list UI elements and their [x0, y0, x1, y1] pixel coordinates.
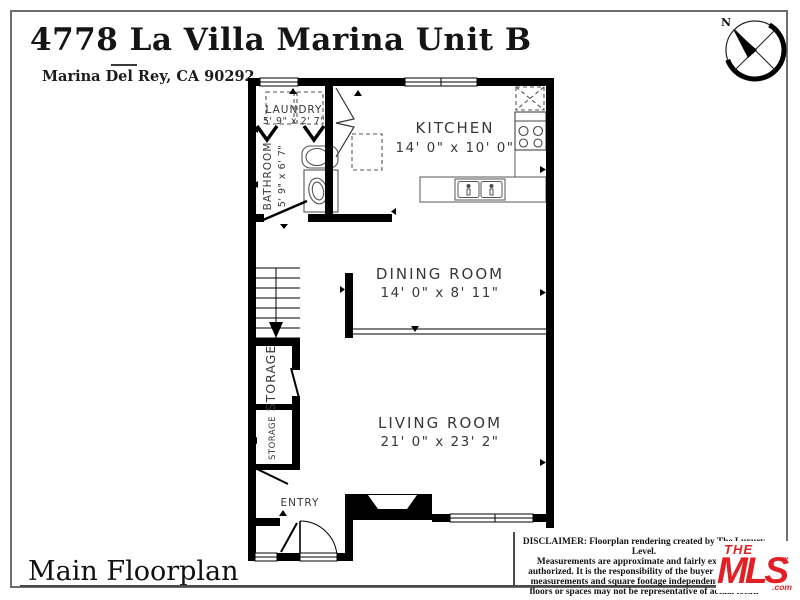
kitchen-appliance-dashed — [352, 134, 382, 170]
north-label: N — [721, 16, 731, 29]
mls-logo: THE MLS ™ .com — [716, 541, 792, 593]
plan-title: Main Floorplan — [28, 556, 239, 587]
living-window-2 — [495, 514, 533, 522]
entry-label: ENTRY — [281, 497, 320, 509]
front-door-swing — [300, 521, 337, 558]
storage-lower-label: STORAGE — [268, 416, 278, 460]
laundry-bifold-right — [304, 126, 324, 140]
living-room-dims: 21' 0" x 23' 2" — [380, 434, 499, 450]
staircase — [256, 268, 300, 338]
laundry-bifold-left — [257, 126, 277, 140]
entry-sidelight — [255, 553, 277, 561]
laundry-dims: 5' 9" x 2' 7" — [263, 116, 325, 127]
front-door-threshold — [300, 553, 337, 561]
footer-divider — [513, 532, 515, 587]
storage-upper-door — [291, 368, 299, 398]
kitchen-counter — [420, 148, 546, 202]
dining-room-label: DINING ROOM — [376, 265, 504, 283]
bathroom-dims: 5' 9" x 6' 7" — [277, 145, 288, 207]
dining-living-rail — [353, 329, 546, 334]
laundry-label: LAUNDRY — [266, 104, 323, 116]
living-room-label: LIVING ROOM — [378, 414, 502, 432]
bathroom-label: BATHROOM — [262, 142, 274, 211]
compass-rose: N — [721, 16, 784, 79]
storage-upper-label: STORAGE — [263, 345, 278, 412]
kitchen-label: KITCHEN — [416, 119, 495, 137]
entry-closet-door — [281, 523, 297, 552]
floorplan-drawing: LAUNDRY 5' 9" x 2' 7" BATHROOM 5' 9" x 6… — [0, 0, 800, 600]
living-window-1 — [450, 514, 495, 522]
stairs-down-arrow — [269, 322, 283, 338]
kitchen-dims: 14' 0" x 10' 0" — [395, 140, 514, 156]
mls-logo-tm: ™ — [782, 557, 789, 564]
stove — [515, 112, 546, 150]
kitchen-window — [405, 78, 477, 86]
refrigerator-dashed — [516, 87, 544, 110]
dining-room-dims: 14' 0" x 8' 11" — [380, 285, 499, 301]
compass-needle — [733, 29, 757, 58]
pantry-fold-door — [336, 88, 354, 157]
fireplace — [345, 494, 432, 520]
laundry-window — [260, 78, 298, 86]
mls-logo-com: .com — [772, 582, 792, 592]
